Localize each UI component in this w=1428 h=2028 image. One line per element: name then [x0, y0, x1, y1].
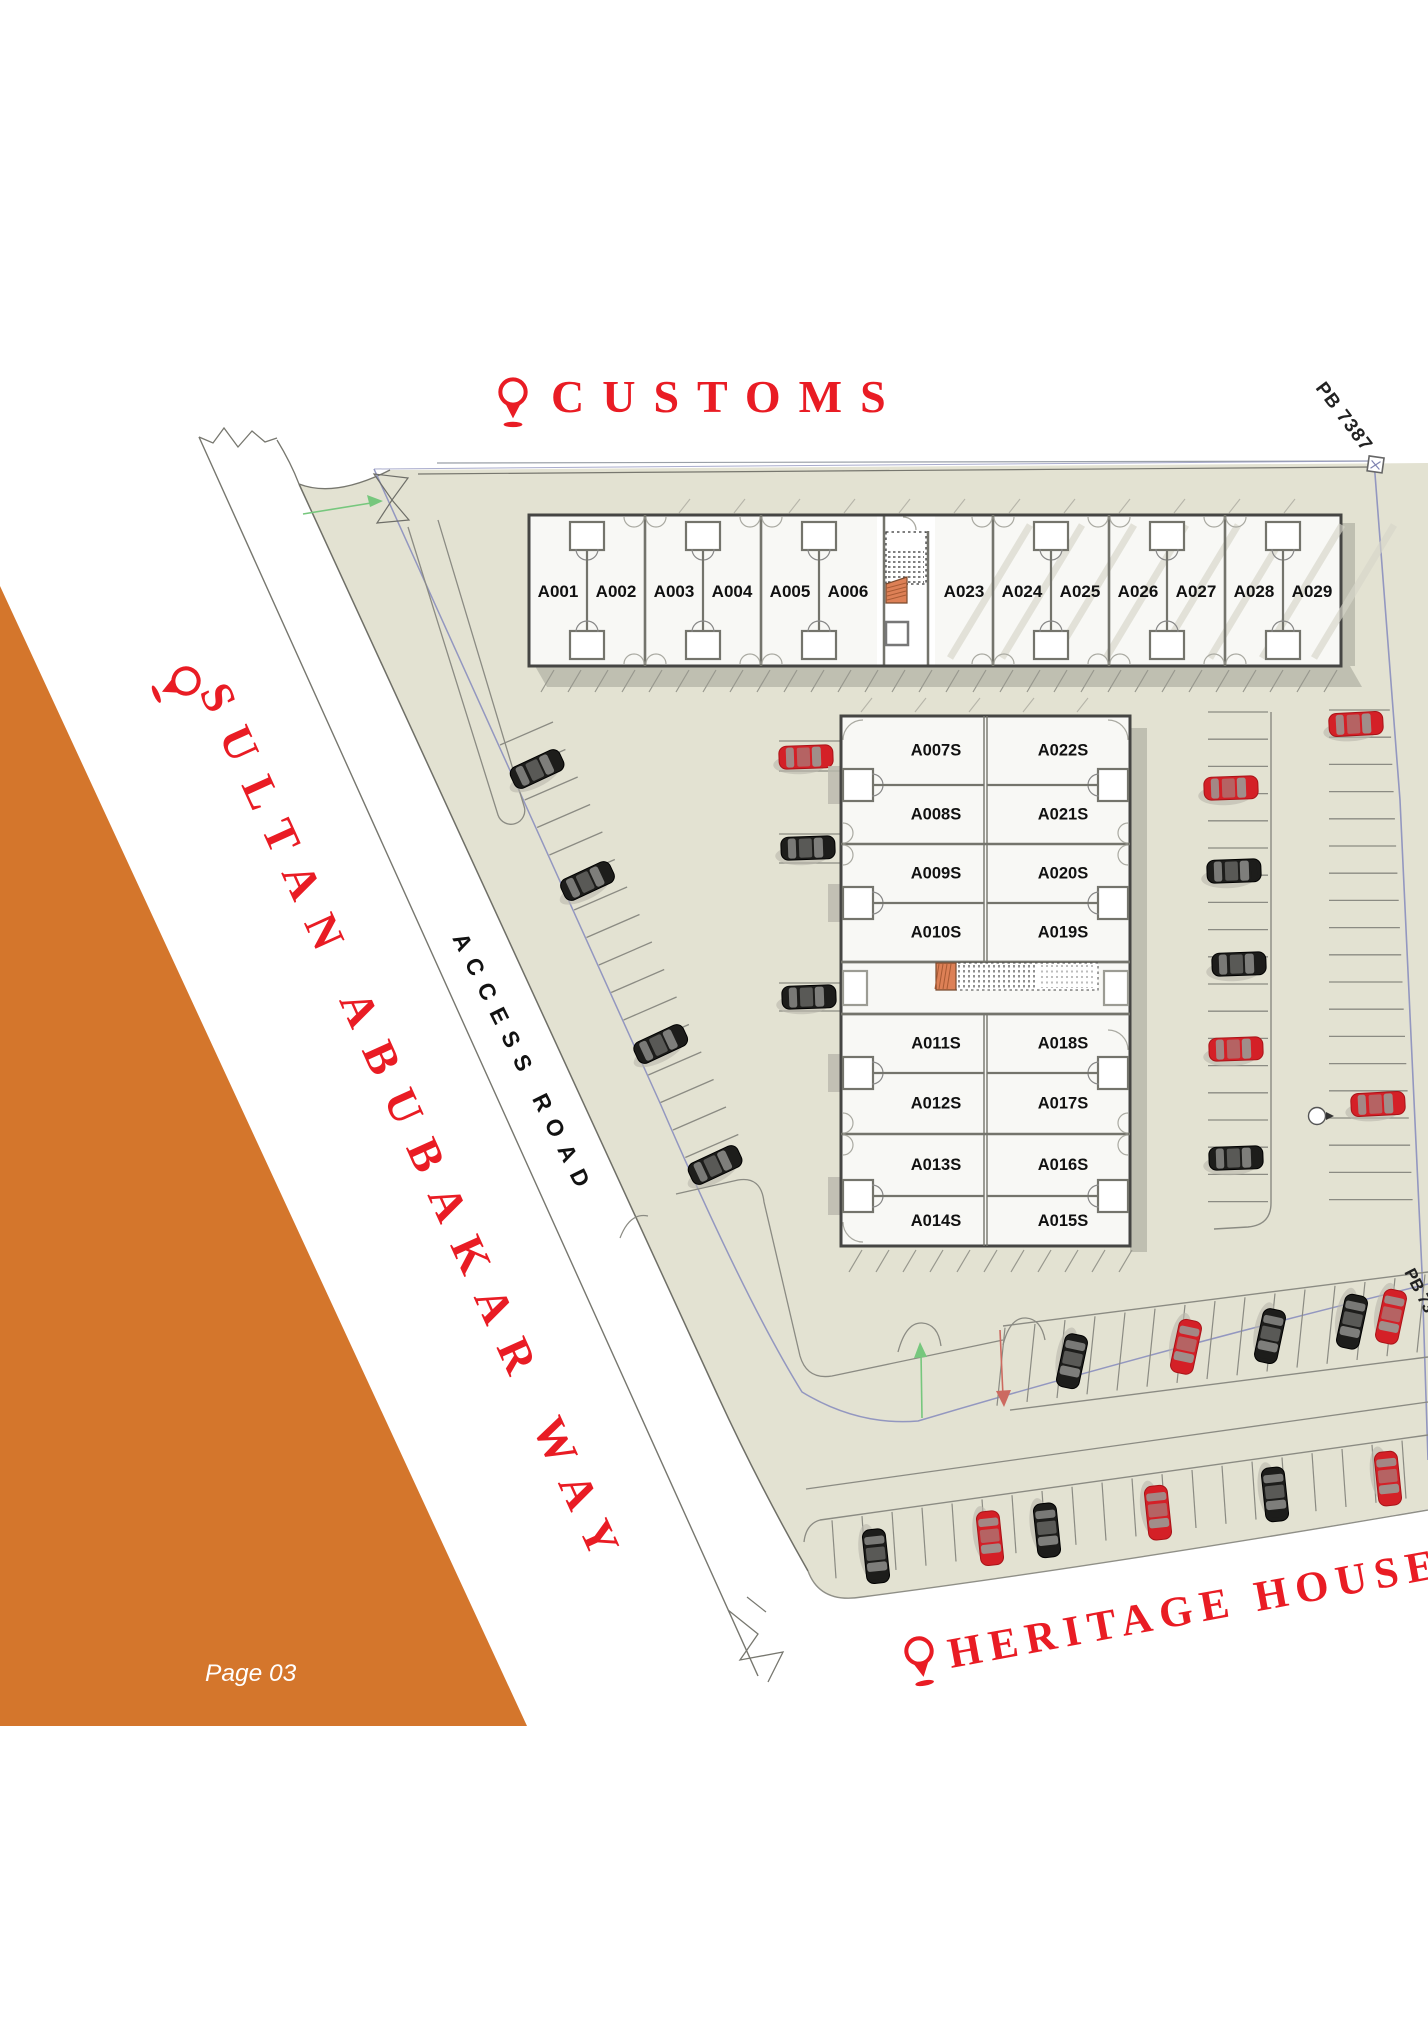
svg-text:A010S: A010S	[911, 924, 961, 942]
svg-text:A015S: A015S	[1038, 1212, 1088, 1230]
svg-text:A027: A027	[1176, 582, 1217, 601]
svg-text:A013S: A013S	[911, 1156, 961, 1174]
svg-text:A025: A025	[1060, 582, 1101, 601]
svg-text:A007S: A007S	[911, 742, 961, 760]
svg-text:A024: A024	[1002, 582, 1043, 601]
svg-text:A002: A002	[596, 582, 637, 601]
svg-text:A011S: A011S	[911, 1035, 961, 1053]
svg-text:Page 03: Page 03	[205, 1660, 297, 1687]
svg-text:A012S: A012S	[911, 1095, 961, 1113]
svg-text:A018S: A018S	[1038, 1035, 1088, 1053]
svg-text:A009S: A009S	[911, 865, 961, 883]
svg-text:CUSTOMS: CUSTOMS	[551, 371, 904, 422]
svg-text:A006: A006	[828, 582, 869, 601]
svg-text:A022S: A022S	[1038, 742, 1088, 760]
svg-text:A008S: A008S	[911, 806, 961, 824]
svg-text:A020S: A020S	[1038, 865, 1088, 883]
svg-text:A021S: A021S	[1038, 806, 1088, 824]
svg-text:A014S: A014S	[911, 1212, 961, 1230]
svg-text:A005: A005	[770, 582, 811, 601]
svg-text:A017S: A017S	[1038, 1095, 1088, 1113]
svg-text:A029: A029	[1292, 582, 1333, 601]
svg-text:A026: A026	[1118, 582, 1159, 601]
svg-text:A001: A001	[538, 582, 579, 601]
svg-text:A019S: A019S	[1038, 924, 1088, 942]
svg-text:A028: A028	[1234, 582, 1275, 601]
svg-text:A023: A023	[944, 582, 985, 601]
svg-text:A003: A003	[654, 582, 695, 601]
svg-text:A016S: A016S	[1038, 1156, 1088, 1174]
svg-text:A004: A004	[712, 582, 753, 601]
